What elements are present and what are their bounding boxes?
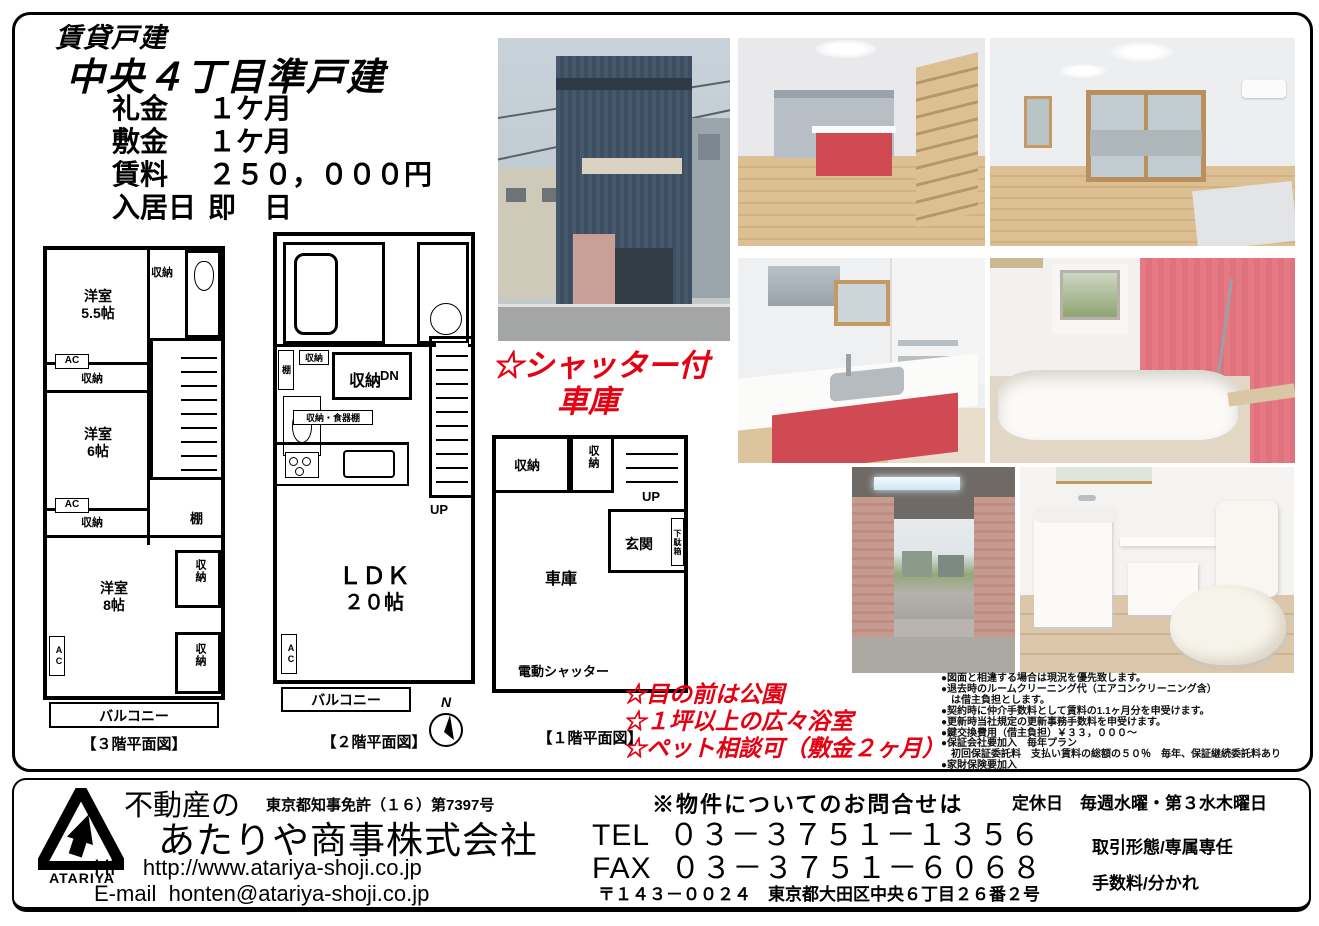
room-5-5: 洋室5.5帖 xyxy=(62,288,134,322)
toilet-3f xyxy=(185,250,221,338)
bathroom-photo xyxy=(990,258,1295,463)
homepage-line: HP http://www.atariya-shoji.co.jp xyxy=(94,855,422,881)
storage-strip-1: 収納 xyxy=(81,370,103,386)
deal-type: 取引形態/専属専任 xyxy=(1092,833,1233,858)
hp-url: http://www.atariya-shoji.co.jp xyxy=(143,855,422,880)
email-address: honten@atariya-shoji.co.jp xyxy=(169,881,430,906)
stove xyxy=(285,452,319,478)
ldk-stairs-photo xyxy=(738,38,985,246)
pet-note: ☆ペット相談可（敷金２ヶ月） xyxy=(623,735,945,762)
ac-label-3: AC xyxy=(49,636,65,676)
floorplan-3f: 洋室5.5帖 収納 AC 収納 洋室6帖 AC 収納 棚 洋室8帖 収納 収納 … xyxy=(43,246,225,700)
kitchen-photo xyxy=(738,258,985,463)
floorplan-1f: 収納 収納 UP 玄関 下駄箱 車庫 電動シャッター xyxy=(492,435,688,693)
balcony-2f: バルコニー xyxy=(281,687,411,712)
sink-2f xyxy=(343,450,395,478)
stairs-3f xyxy=(150,338,221,480)
company-address: 〒１４３－００２４ 東京都大田区中央６丁目２６番２号 xyxy=(598,880,1040,905)
fine-print: ●図面と相違する場合は現況を優先致します。 ●退去時のルームクリーニング代（エア… xyxy=(941,674,1307,772)
storage-strip-2: 収納 xyxy=(81,514,103,530)
fine-print-line: ●契約時に仲介手数料として賃料の1.1ヶ月分を申受けます。 xyxy=(941,707,1307,718)
storage-2f-small: 収納 xyxy=(299,350,329,365)
shoebox-label: 下駄箱 xyxy=(671,518,684,566)
ldk-label: ＬＤＫ２０帖 xyxy=(277,564,471,616)
toilet-2f xyxy=(283,396,321,456)
storage-2f: 収納 xyxy=(332,352,412,400)
exterior-photo xyxy=(498,38,730,341)
stairs-2f xyxy=(429,336,471,498)
email-line: E-mail honten@atariya-shoji.co.jp xyxy=(94,881,429,907)
living-photo xyxy=(990,38,1295,246)
bath-note: ☆１坪以上の広々浴室 xyxy=(623,708,945,735)
terms-list: 礼金１ケ月 敷金１ケ月 賃料２５０，０００円 入居日即 日 xyxy=(112,92,432,224)
up-label-2f: UP xyxy=(430,502,448,517)
shutter-note-line2: 車庫 xyxy=(492,384,718,420)
closet-3f-a: 収納 xyxy=(175,550,221,608)
closet-3f-b: 収納 xyxy=(175,632,221,694)
stairs-1f xyxy=(626,441,678,485)
shutter-label: 電動シャッター xyxy=(518,661,609,680)
highlight-notes: ☆目の前は公園 ☆１坪以上の広々浴室 ☆ペット相談可（敷金２ヶ月） xyxy=(623,681,945,762)
term-chinryo: 賃料２５０，０００円 xyxy=(112,158,432,191)
closed-days: 定休日 毎週水曜・第３水木曜日 xyxy=(1012,789,1267,814)
storage-dish-label: 収納・食器棚 xyxy=(293,410,373,425)
up-label-1f: UP xyxy=(642,489,660,504)
fine-print-line: ●家財保険要加入 xyxy=(941,761,1307,772)
fee-type: 手数料/分かれ xyxy=(1092,869,1199,894)
balcony-3f: バルコニー xyxy=(49,702,219,728)
caption-3f: 【３階平面図】 xyxy=(43,733,225,754)
storage-1f-b: 収納 xyxy=(570,439,614,493)
garage-label: 車庫 xyxy=(506,571,616,588)
entrance-1f: 玄関 下駄箱 xyxy=(608,509,684,573)
flyer-page: 賃貸戸建 中央４丁目準戸建 礼金１ケ月 敷金１ケ月 賃料２５０，０００円 入居日… xyxy=(0,0,1319,926)
compass-north-label: N xyxy=(424,694,468,710)
ac-label-1: AC xyxy=(55,354,89,369)
compass-icon xyxy=(426,710,466,750)
term-nyukyobi: 入居日即 日 xyxy=(112,191,432,224)
fine-print-line: ●更新時当社規定の更新事務手数料を申受けます。 xyxy=(941,718,1307,729)
dn-label: DN xyxy=(380,368,399,383)
toilet-photo xyxy=(1020,467,1294,673)
storage-label: 収納 xyxy=(151,264,173,280)
storage-1f-a: 収納 xyxy=(496,439,570,493)
laundry-2f xyxy=(417,242,469,344)
hp-label: HP xyxy=(94,855,125,880)
email-label: E-mail xyxy=(94,881,156,906)
term-shikikin: 敷金１ケ月 xyxy=(112,125,432,158)
room-6: 洋室6帖 xyxy=(62,426,134,460)
park-note: ☆目の前は公園 xyxy=(623,681,945,708)
bathroom-2f xyxy=(283,242,385,344)
term-reikin: 礼金１ケ月 xyxy=(112,92,432,125)
compass: N xyxy=(424,694,468,755)
room-8: 洋室8帖 xyxy=(72,580,156,614)
ac-label-2f: AC xyxy=(281,634,297,674)
shelf-label: 棚 xyxy=(190,508,203,527)
floorplan-2f: 棚 収納 収納 DN UP 収納・食器棚 ＬＤＫ２０帖 AC xyxy=(273,232,475,684)
shutter-note-line1: ☆シャッター付 xyxy=(492,348,718,384)
shutter-garage-note: ☆シャッター付 車庫 xyxy=(492,348,718,420)
garage-photo xyxy=(852,467,1015,673)
shelf-2f: 棚 xyxy=(278,350,294,390)
ac-label-2: AC xyxy=(55,498,89,513)
